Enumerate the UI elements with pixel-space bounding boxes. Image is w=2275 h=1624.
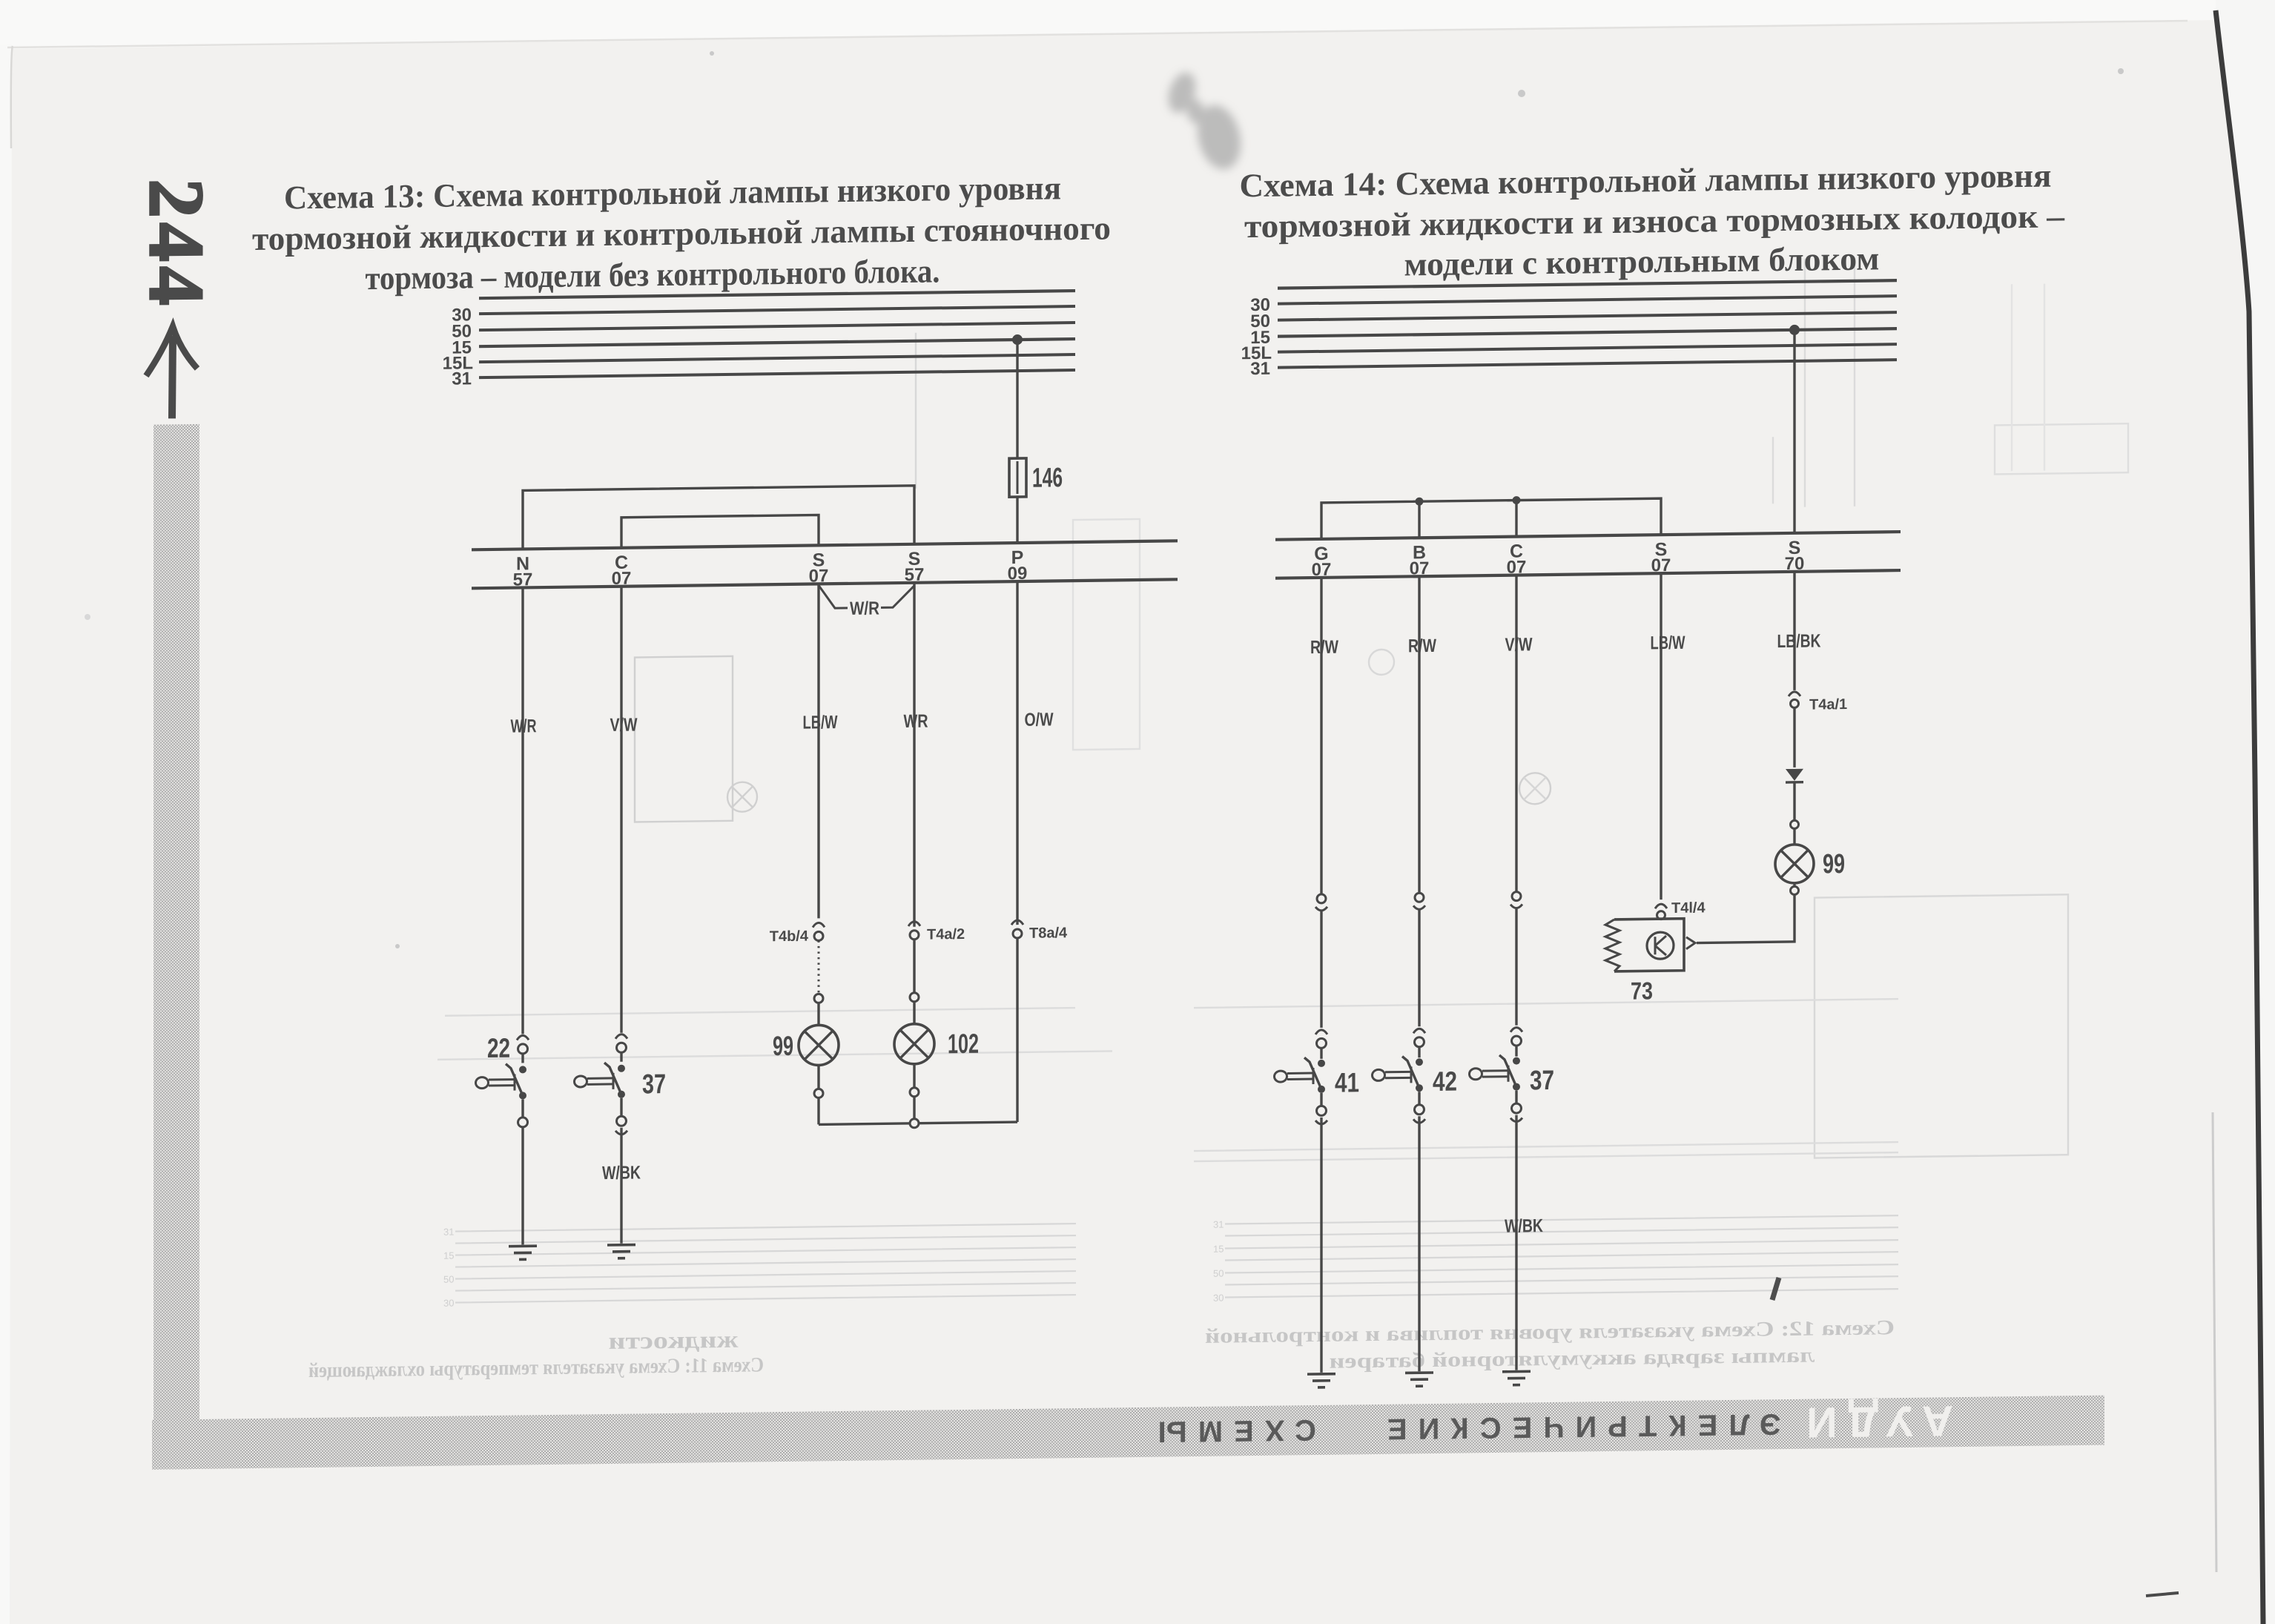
svg-text:57: 57 bbox=[513, 570, 533, 590]
svg-text:15: 15 bbox=[443, 1250, 454, 1261]
svg-text:Схема 11: Схема указателя темп: Схема 11: Схема указателя температуры ох… bbox=[308, 1353, 764, 1382]
svg-text:70: 70 bbox=[1785, 554, 1805, 574]
svg-text:09: 09 bbox=[1008, 564, 1028, 584]
svg-text:31: 31 bbox=[1213, 1219, 1224, 1230]
svg-text:07: 07 bbox=[1507, 557, 1527, 577]
svg-text:T4b/4: T4b/4 bbox=[770, 928, 809, 945]
svg-text:15: 15 bbox=[1213, 1244, 1224, 1255]
svg-text:WR: WR bbox=[904, 711, 928, 732]
svg-text:O/W: O/W bbox=[1024, 709, 1053, 730]
svg-text:30: 30 bbox=[1213, 1293, 1224, 1304]
svg-text:W/BK: W/BK bbox=[602, 1162, 641, 1184]
svg-text:37: 37 bbox=[642, 1069, 666, 1099]
svg-text:T4l/4: T4l/4 bbox=[1671, 900, 1706, 917]
svg-text:146: 146 bbox=[1032, 462, 1063, 493]
svg-text:73: 73 bbox=[1631, 977, 1653, 1004]
svg-text:LB/BK: LB/BK bbox=[1777, 630, 1821, 652]
svg-text:T4a/2: T4a/2 bbox=[927, 926, 965, 943]
svg-text:07: 07 bbox=[1651, 555, 1671, 575]
svg-text:R/W: R/W bbox=[1310, 637, 1338, 658]
svg-text:T8a/4: T8a/4 bbox=[1029, 925, 1068, 942]
svg-text:жидкости: жидкости bbox=[609, 1326, 739, 1354]
svg-text:50: 50 bbox=[443, 1274, 454, 1285]
svg-text:W/R: W/R bbox=[850, 598, 879, 619]
svg-text:W/BK: W/BK bbox=[1505, 1215, 1543, 1237]
svg-text:тормоза – модели без контрольн: тормоза – модели без контрольного блока. bbox=[365, 252, 940, 297]
svg-text:07: 07 bbox=[1312, 560, 1332, 580]
svg-text:T4a/1: T4a/1 bbox=[1809, 696, 1847, 713]
svg-text:АУДИ: АУДИ bbox=[1796, 1396, 1953, 1447]
svg-text:99: 99 bbox=[1823, 848, 1845, 879]
svg-text:LB/W: LB/W bbox=[1650, 633, 1685, 654]
svg-text:модели с контрольным блоком: модели с контрольным блоком bbox=[1404, 240, 1880, 283]
svg-text:22: 22 bbox=[487, 1033, 510, 1063]
svg-text:41: 41 bbox=[1335, 1067, 1359, 1097]
svg-text:07: 07 bbox=[612, 569, 632, 589]
svg-text:42: 42 bbox=[1433, 1066, 1457, 1097]
svg-text:Схема 14: Схема контрольной ла: Схема 14: Схема контрольной лампы низког… bbox=[1240, 157, 2052, 205]
svg-text:тормозной жидкости и износа то: тормозной жидкости и износа тормозных ко… bbox=[1244, 197, 2065, 245]
svg-text:57: 57 bbox=[905, 565, 925, 585]
svg-text:07: 07 bbox=[1410, 558, 1430, 578]
svg-text:50: 50 bbox=[1213, 1268, 1224, 1279]
svg-text:31: 31 bbox=[443, 1227, 454, 1238]
svg-text:07: 07 bbox=[809, 566, 829, 586]
svg-text:V/W: V/W bbox=[1505, 634, 1533, 655]
svg-text:99: 99 bbox=[773, 1031, 793, 1061]
svg-text:R/W: R/W bbox=[1408, 636, 1436, 656]
svg-text:31: 31 bbox=[1250, 359, 1270, 379]
svg-text:Схема 12: Схема указателя уров: Схема 12: Схема указателя уровня топлива… bbox=[1205, 1316, 1895, 1348]
svg-text:LB/W: LB/W bbox=[803, 712, 838, 733]
svg-text:102: 102 bbox=[948, 1029, 979, 1060]
svg-text:Схема 13: Схема контрольной ла: Схема 13: Схема контрольной лампы низког… bbox=[284, 169, 1061, 216]
svg-text:тормозной жидкости и контрольн: тормозной жидкости и контрольной лампы с… bbox=[252, 209, 1111, 257]
svg-text:31: 31 bbox=[452, 369, 472, 389]
svg-text:244: 244 bbox=[133, 178, 220, 310]
svg-text:37: 37 bbox=[1530, 1065, 1554, 1095]
svg-text:лампы заряда аккумуляторной ба: лампы заряда аккумуляторной батареи bbox=[1329, 1344, 1815, 1373]
svg-text:30: 30 bbox=[443, 1298, 454, 1309]
svg-text:V/W: V/W bbox=[610, 714, 638, 735]
